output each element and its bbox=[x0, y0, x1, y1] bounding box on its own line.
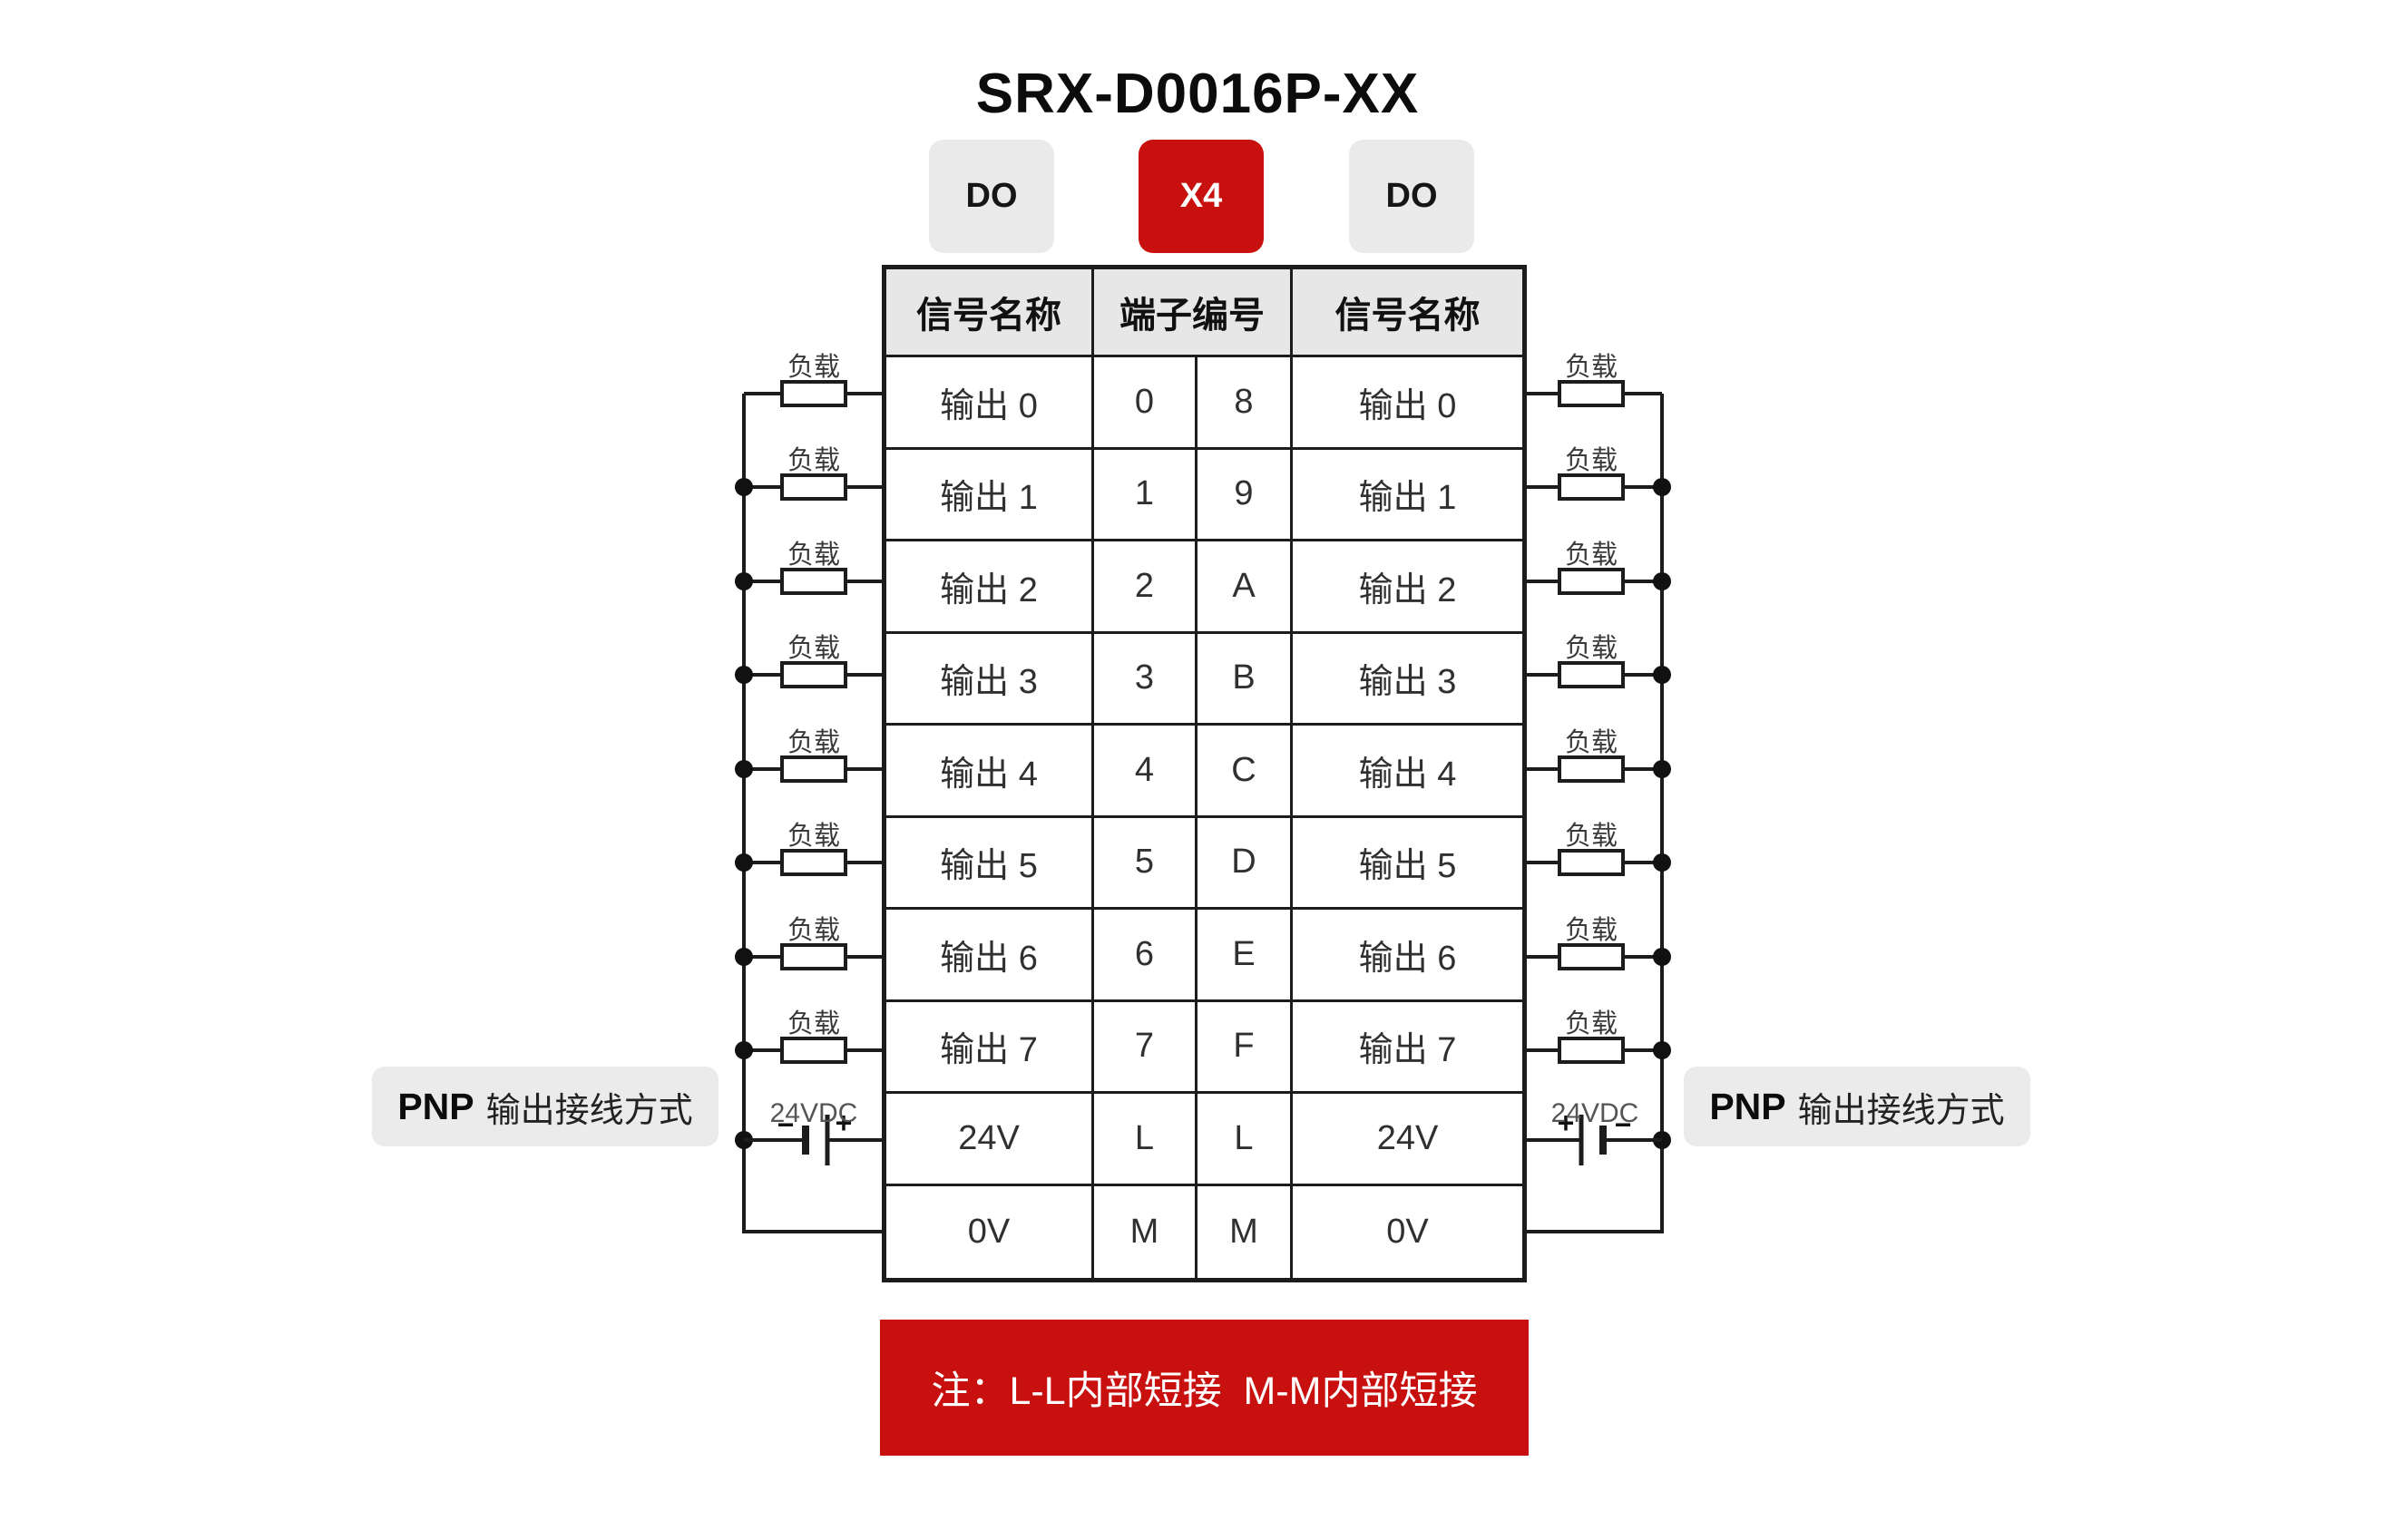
signal-cell: 0V bbox=[886, 1186, 1094, 1279]
terminal-cell: M bbox=[1197, 1186, 1293, 1279]
load-resistor-icon bbox=[744, 445, 882, 499]
load-resistor-icon bbox=[744, 727, 882, 781]
terminal-cell: M bbox=[1094, 1186, 1197, 1279]
signal-cell: 输出 4 bbox=[1293, 726, 1522, 818]
header-terminal: 端子编号 bbox=[1094, 269, 1293, 357]
terminal-cell: E bbox=[1197, 910, 1293, 1002]
signal-cell: 输出 0 bbox=[1293, 357, 1522, 450]
pnp-label-text: 输出接线方式 bbox=[1798, 1082, 2005, 1132]
load-resistor-icon bbox=[744, 540, 882, 593]
header-signal-left: 信号名称 bbox=[886, 269, 1094, 357]
signal-cell: 输出 5 bbox=[886, 818, 1094, 911]
load-resistor-icon bbox=[744, 821, 882, 874]
note-banner: 注：L-L内部短接 M-M内部短接 bbox=[880, 1320, 1529, 1456]
battery-icon-right: + − 24VDC bbox=[1527, 1098, 1662, 1165]
pnp-label-bold: PNP bbox=[397, 1086, 474, 1128]
signal-cell: 输出 0 bbox=[886, 357, 1094, 450]
load-resistor-icon bbox=[744, 633, 882, 687]
signal-table: 信号名称 端子编号 信号名称 输出 0 0 8 输出 0 输出 1 1 9 输出… bbox=[882, 265, 1527, 1282]
battery-icon-left: − + 24VDC bbox=[744, 1098, 882, 1165]
signal-cell: 输出 1 bbox=[1293, 450, 1522, 542]
signal-cell: 输出 2 bbox=[886, 541, 1094, 634]
pnp-label-text: 输出接线方式 bbox=[486, 1082, 693, 1132]
load-resistor-icon bbox=[744, 352, 882, 405]
terminal-cell: 0 bbox=[1094, 357, 1197, 450]
terminal-cell: 9 bbox=[1197, 450, 1293, 542]
signal-cell: 24V bbox=[1293, 1094, 1522, 1186]
signal-cell: 0V bbox=[1293, 1186, 1522, 1279]
load-resistor-icon bbox=[1527, 1009, 1662, 1062]
load-resistor-icon bbox=[1527, 915, 1662, 969]
terminal-cell: L bbox=[1197, 1094, 1293, 1186]
terminal-cell: D bbox=[1197, 818, 1293, 911]
terminal-cell: 5 bbox=[1094, 818, 1197, 911]
load-resistor-icon bbox=[1527, 727, 1662, 781]
pnp-label-bold: PNP bbox=[1709, 1086, 1785, 1128]
terminal-cell: A bbox=[1197, 541, 1293, 634]
terminal-cell: 4 bbox=[1094, 726, 1197, 818]
terminal-cell: L bbox=[1094, 1094, 1197, 1186]
signal-cell: 输出 6 bbox=[1293, 910, 1522, 1002]
terminal-cell: 2 bbox=[1094, 541, 1197, 634]
signal-cell: 输出 3 bbox=[1293, 634, 1522, 726]
load-resistor-icon bbox=[1527, 540, 1662, 593]
signal-cell: 输出 2 bbox=[1293, 541, 1522, 634]
terminal-cell: 7 bbox=[1094, 1002, 1197, 1095]
load-resistor-icon bbox=[744, 915, 882, 969]
battery-voltage-label: 24VDC bbox=[1551, 1098, 1639, 1128]
terminal-cell: B bbox=[1197, 634, 1293, 726]
load-resistor-icon bbox=[1527, 445, 1662, 499]
signal-cell: 输出 5 bbox=[1293, 818, 1522, 911]
load-resistor-icon bbox=[1527, 633, 1662, 687]
load-resistor-icon bbox=[1527, 821, 1662, 874]
load-resistor-icon bbox=[744, 1009, 882, 1062]
signal-cell: 输出 7 bbox=[1293, 1002, 1522, 1095]
terminal-cell: 1 bbox=[1094, 450, 1197, 542]
terminal-cell: 6 bbox=[1094, 910, 1197, 1002]
terminal-cell: 8 bbox=[1197, 357, 1293, 450]
signal-cell: 输出 1 bbox=[886, 450, 1094, 542]
signal-cell: 输出 4 bbox=[886, 726, 1094, 818]
signal-cell: 24V bbox=[886, 1094, 1094, 1186]
pnp-wiring-label-left: PNP 输出接线方式 bbox=[372, 1067, 718, 1146]
header-signal-right: 信号名称 bbox=[1293, 269, 1522, 357]
signal-cell: 输出 7 bbox=[886, 1002, 1094, 1095]
load-resistor-icon bbox=[1527, 352, 1662, 405]
battery-voltage-label: 24VDC bbox=[770, 1098, 858, 1128]
terminal-cell: 3 bbox=[1094, 634, 1197, 726]
signal-cell: 输出 3 bbox=[886, 634, 1094, 726]
signal-cell: 输出 6 bbox=[886, 910, 1094, 1002]
wiring-diagram-page: SRX-D0016P-XX DO X4 DO 负载 负载 bbox=[0, 0, 2395, 1540]
terminal-cell: C bbox=[1197, 726, 1293, 818]
terminal-cell: F bbox=[1197, 1002, 1293, 1095]
pnp-wiring-label-right: PNP 输出接线方式 bbox=[1684, 1067, 2030, 1146]
